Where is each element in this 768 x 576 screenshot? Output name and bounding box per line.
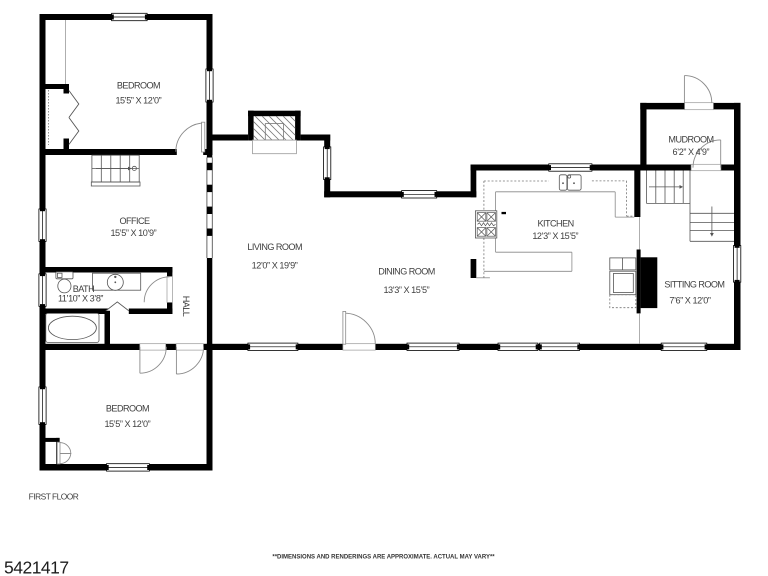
svg-text:HALL: HALL [181,296,191,317]
svg-text:DINING ROOM: DINING ROOM [378,267,435,277]
svg-text:MUDROOM: MUDROOM [668,135,713,145]
svg-text:6’2” X 4’9”: 6’2” X 4’9” [673,147,710,157]
svg-text:7’6” X 12’0”: 7’6” X 12’0” [669,295,711,305]
svg-text:12’3” X 15’5”: 12’3” X 15’5” [532,231,578,241]
svg-text:SITTING ROOM: SITTING ROOM [664,280,724,290]
svg-text:BEDROOM: BEDROOM [117,81,160,91]
svg-text:13’3” X 15’5”: 13’3” X 15’5” [383,285,429,295]
svg-text:FIRST FLOOR: FIRST FLOOR [29,491,79,501]
svg-text:**DIMENSIONS AND RENDERINGS AR: **DIMENSIONS AND RENDERINGS ARE APPROXIM… [272,555,495,561]
svg-text:5421417: 5421417 [4,558,69,576]
svg-text:12’0” X 19’9”: 12’0” X 19’9” [252,260,298,270]
svg-text:BEDROOM: BEDROOM [106,404,149,414]
svg-text:OFFICE: OFFICE [119,216,150,226]
svg-text:LIVING ROOM: LIVING ROOM [247,242,302,252]
svg-text:11’10” X 3’8”: 11’10” X 3’8” [58,293,103,303]
svg-text:KITCHEN: KITCHEN [538,219,574,229]
svg-text:15’5” X 10’9”: 15’5” X 10’9” [110,228,156,238]
svg-text:BATH: BATH [73,284,94,294]
svg-text:15’5” X 12’0”: 15’5” X 12’0” [115,96,161,106]
svg-text:15’5” X 12’0”: 15’5” X 12’0” [104,419,150,429]
